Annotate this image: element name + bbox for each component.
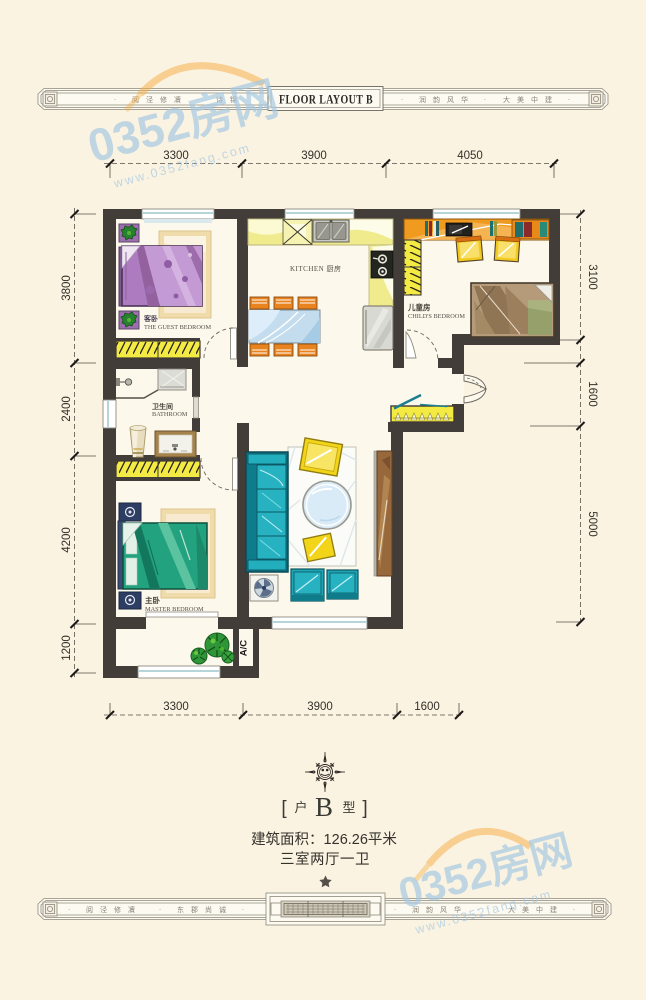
svg-text:CHILD'S BEDROOM: CHILD'S BEDROOM — [408, 313, 465, 320]
svg-text:MASTER BEDROOM: MASTER BEDROOM — [145, 606, 204, 613]
svg-text:1600: 1600 — [586, 381, 598, 407]
svg-text:KITCHEN 厨房: KITCHEN 厨房 — [290, 264, 341, 273]
svg-text:三室两厅一卫: 三室两厅一卫 — [280, 851, 370, 868]
svg-text:大美中建 ·: 大美中建 · — [503, 95, 577, 104]
svg-text:1200: 1200 — [61, 635, 73, 661]
svg-text:A/C: A/C — [239, 640, 250, 657]
svg-text:[: [ — [281, 798, 287, 819]
svg-text:B: B — [315, 792, 333, 822]
svg-text:3900: 3900 — [301, 150, 327, 162]
svg-text:儿童房: 儿童房 — [407, 302, 431, 312]
svg-text:3100: 3100 — [586, 264, 598, 290]
svg-text:卫生间: 卫生间 — [152, 402, 173, 411]
svg-text:· 东郡尚诚 ·: · 东郡尚诚 · — [159, 905, 251, 914]
svg-text:客卧: 客卧 — [143, 314, 158, 323]
svg-text:型: 型 — [342, 800, 355, 815]
svg-text:]: ] — [362, 798, 367, 819]
svg-text:FLOOR LAYOUT B: FLOOR LAYOUT B — [279, 93, 373, 107]
svg-text:1600: 1600 — [414, 701, 440, 713]
svg-text:· 润韵风华 ·: · 润韵风华 · — [401, 95, 493, 104]
svg-text:5000: 5000 — [586, 511, 598, 537]
svg-text:4200: 4200 — [61, 527, 73, 553]
svg-text:BATHROOM: BATHROOM — [152, 411, 188, 418]
svg-text:3800: 3800 — [61, 275, 73, 301]
svg-text:户: 户 — [294, 800, 307, 815]
svg-text:THE GUEST BEDROOM: THE GUEST BEDROOM — [144, 324, 211, 331]
svg-text:3900: 3900 — [307, 701, 333, 713]
svg-text:4050: 4050 — [457, 150, 483, 162]
svg-text:2400: 2400 — [61, 396, 73, 422]
svg-text:主卧: 主卧 — [145, 595, 160, 605]
svg-text:· 阅泾修凟: · 阅泾修凟 — [68, 905, 142, 914]
svg-text:3300: 3300 — [163, 701, 189, 713]
svg-text:建筑面积：126.26平米: 建筑面积：126.26平米 — [251, 831, 397, 848]
